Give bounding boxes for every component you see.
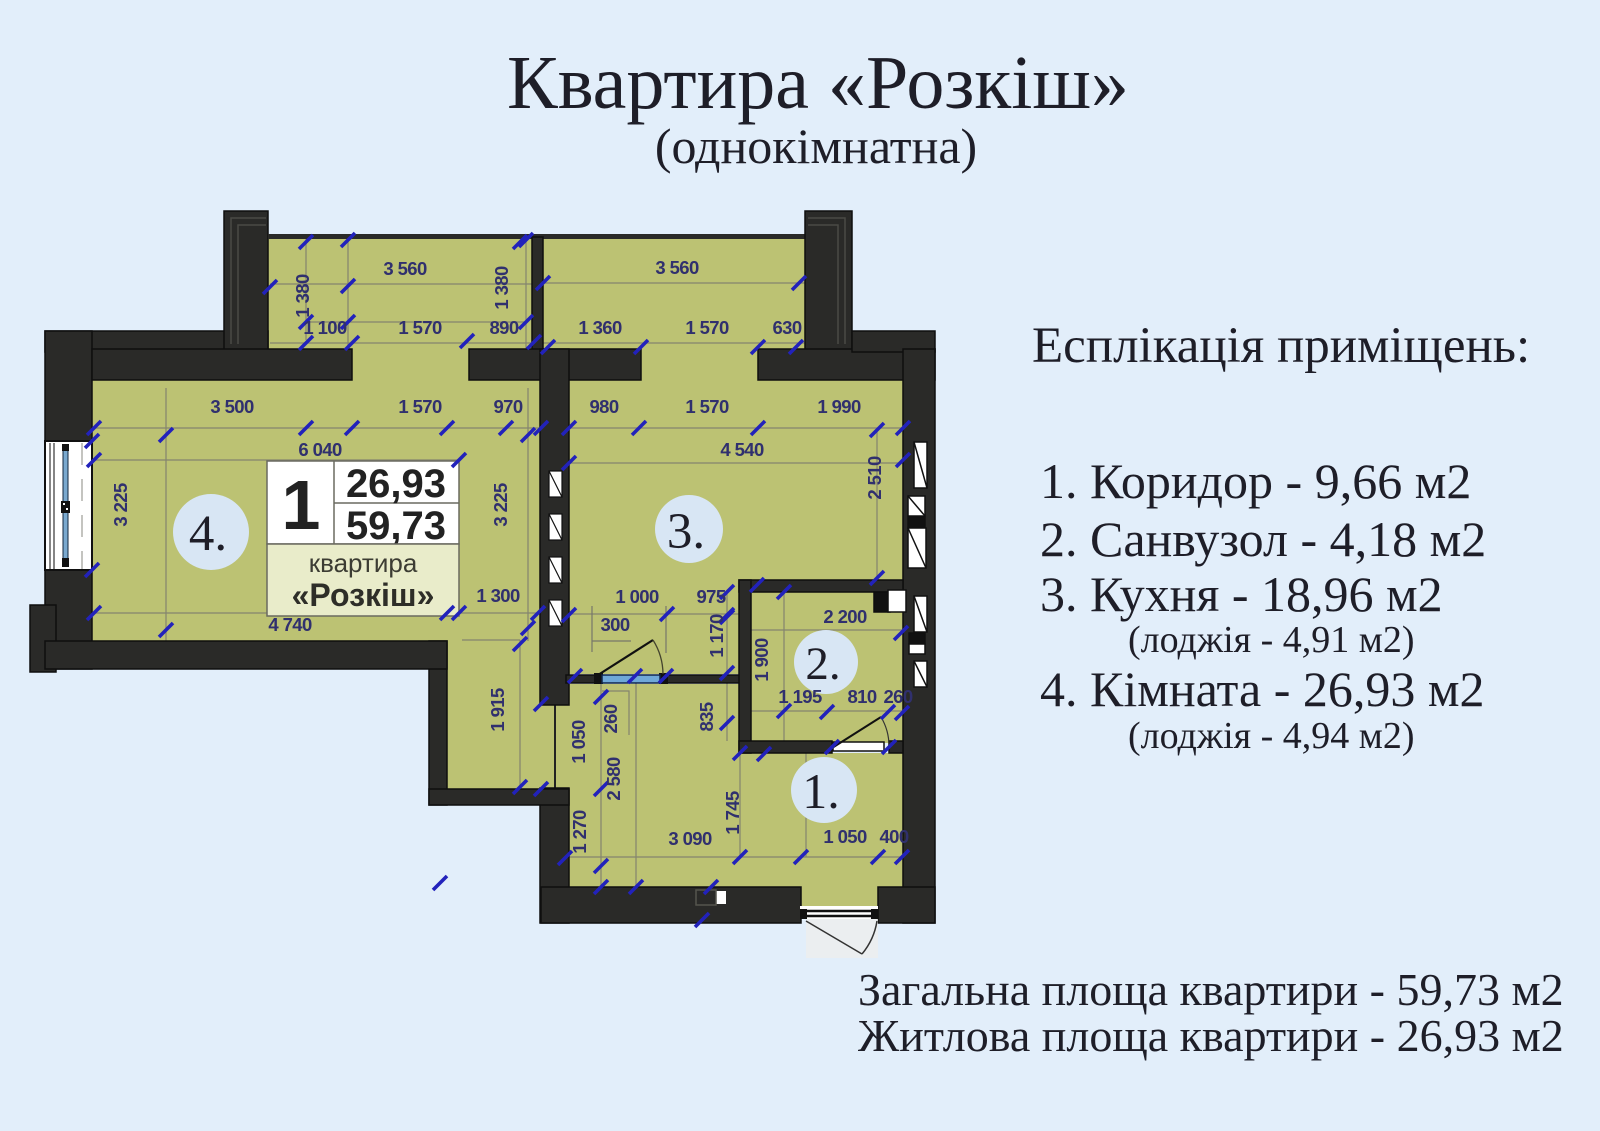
- svg-text:1 380: 1 380: [491, 266, 512, 310]
- svg-text:1. Коридор - 9,66 м2: 1. Коридор - 9,66 м2: [1040, 453, 1471, 509]
- svg-text:6 040: 6 040: [298, 439, 342, 460]
- svg-text:1.: 1.: [802, 763, 840, 819]
- svg-text:3 560: 3 560: [383, 258, 427, 279]
- svg-text:Загальна площа квартири - 59,7: Загальна площа квартири - 59,73 м2: [858, 964, 1564, 1015]
- svg-text:(лоджія - 4,94 м2): (лоджія - 4,94 м2): [1128, 715, 1415, 757]
- svg-text:975: 975: [696, 586, 725, 607]
- svg-text:1 570: 1 570: [398, 317, 442, 338]
- svg-text:1 380: 1 380: [292, 274, 313, 318]
- svg-text:1 990: 1 990: [817, 396, 861, 417]
- svg-text:1 900: 1 900: [751, 638, 772, 682]
- svg-text:1 570: 1 570: [685, 317, 729, 338]
- svg-text:1 745: 1 745: [722, 791, 743, 835]
- svg-text:1 195: 1 195: [778, 686, 822, 707]
- svg-text:300: 300: [600, 614, 629, 635]
- svg-text:260: 260: [600, 704, 621, 733]
- svg-text:1 300: 1 300: [476, 585, 520, 606]
- svg-text:Житлова площа квартири - 26,93: Житлова площа квартири - 26,93 м2: [858, 1010, 1564, 1061]
- svg-text:2 200: 2 200: [823, 606, 867, 627]
- svg-text:3. Кухня - 18,96 м2: 3. Кухня - 18,96 м2: [1040, 566, 1443, 622]
- svg-text:1 570: 1 570: [398, 396, 442, 417]
- svg-text:260: 260: [883, 686, 912, 707]
- svg-text:(однокімнатна): (однокімнатна): [655, 118, 977, 174]
- svg-text:1 050: 1 050: [568, 720, 589, 764]
- svg-text:26,93: 26,93: [346, 462, 446, 506]
- svg-text:1 360: 1 360: [578, 317, 622, 338]
- svg-text:59,73: 59,73: [346, 504, 446, 548]
- svg-text:3 225: 3 225: [490, 483, 511, 527]
- svg-text:400: 400: [879, 826, 908, 847]
- svg-text:«Розкіш»: «Розкіш»: [292, 577, 435, 613]
- svg-text:1 100: 1 100: [303, 317, 347, 338]
- svg-text:890: 890: [489, 317, 518, 338]
- svg-text:1 570: 1 570: [685, 396, 729, 417]
- svg-text:1 170: 1 170: [706, 614, 727, 658]
- svg-text:2.: 2.: [805, 638, 840, 690]
- svg-text:квартира: квартира: [309, 548, 418, 578]
- svg-text:1 915: 1 915: [487, 688, 508, 732]
- svg-text:4. Кімната - 26,93 м2: 4. Кімната - 26,93 м2: [1040, 661, 1484, 717]
- svg-text:3 500: 3 500: [210, 396, 254, 417]
- svg-text:980: 980: [589, 396, 618, 417]
- svg-text:1 050: 1 050: [823, 826, 867, 847]
- svg-text:Есплікація приміщень:: Есплікація приміщень:: [1032, 318, 1530, 374]
- svg-text:4 540: 4 540: [720, 439, 764, 460]
- svg-text:810: 810: [847, 686, 876, 707]
- svg-text:1 000: 1 000: [615, 586, 659, 607]
- svg-text:3.: 3.: [667, 504, 705, 560]
- svg-text:1 270: 1 270: [569, 810, 590, 854]
- svg-text:Квартира «Розкіш»: Квартира «Розкіш»: [507, 41, 1129, 125]
- svg-text:4.: 4.: [189, 506, 227, 562]
- svg-text:630: 630: [772, 317, 801, 338]
- svg-text:970: 970: [493, 396, 522, 417]
- svg-text:3 090: 3 090: [668, 828, 712, 849]
- svg-text:3 560: 3 560: [655, 257, 699, 278]
- svg-text:2. Санвузол - 4,18 м2: 2. Санвузол - 4,18 м2: [1040, 511, 1486, 567]
- svg-text:4 740: 4 740: [268, 614, 312, 635]
- svg-text:2 510: 2 510: [864, 456, 885, 500]
- svg-text:(лоджія - 4,91 м2): (лоджія - 4,91 м2): [1128, 619, 1415, 661]
- svg-text:2 580: 2 580: [603, 757, 624, 801]
- svg-text:1: 1: [282, 466, 321, 544]
- svg-text:3 225: 3 225: [110, 483, 131, 527]
- svg-text:835: 835: [696, 702, 717, 731]
